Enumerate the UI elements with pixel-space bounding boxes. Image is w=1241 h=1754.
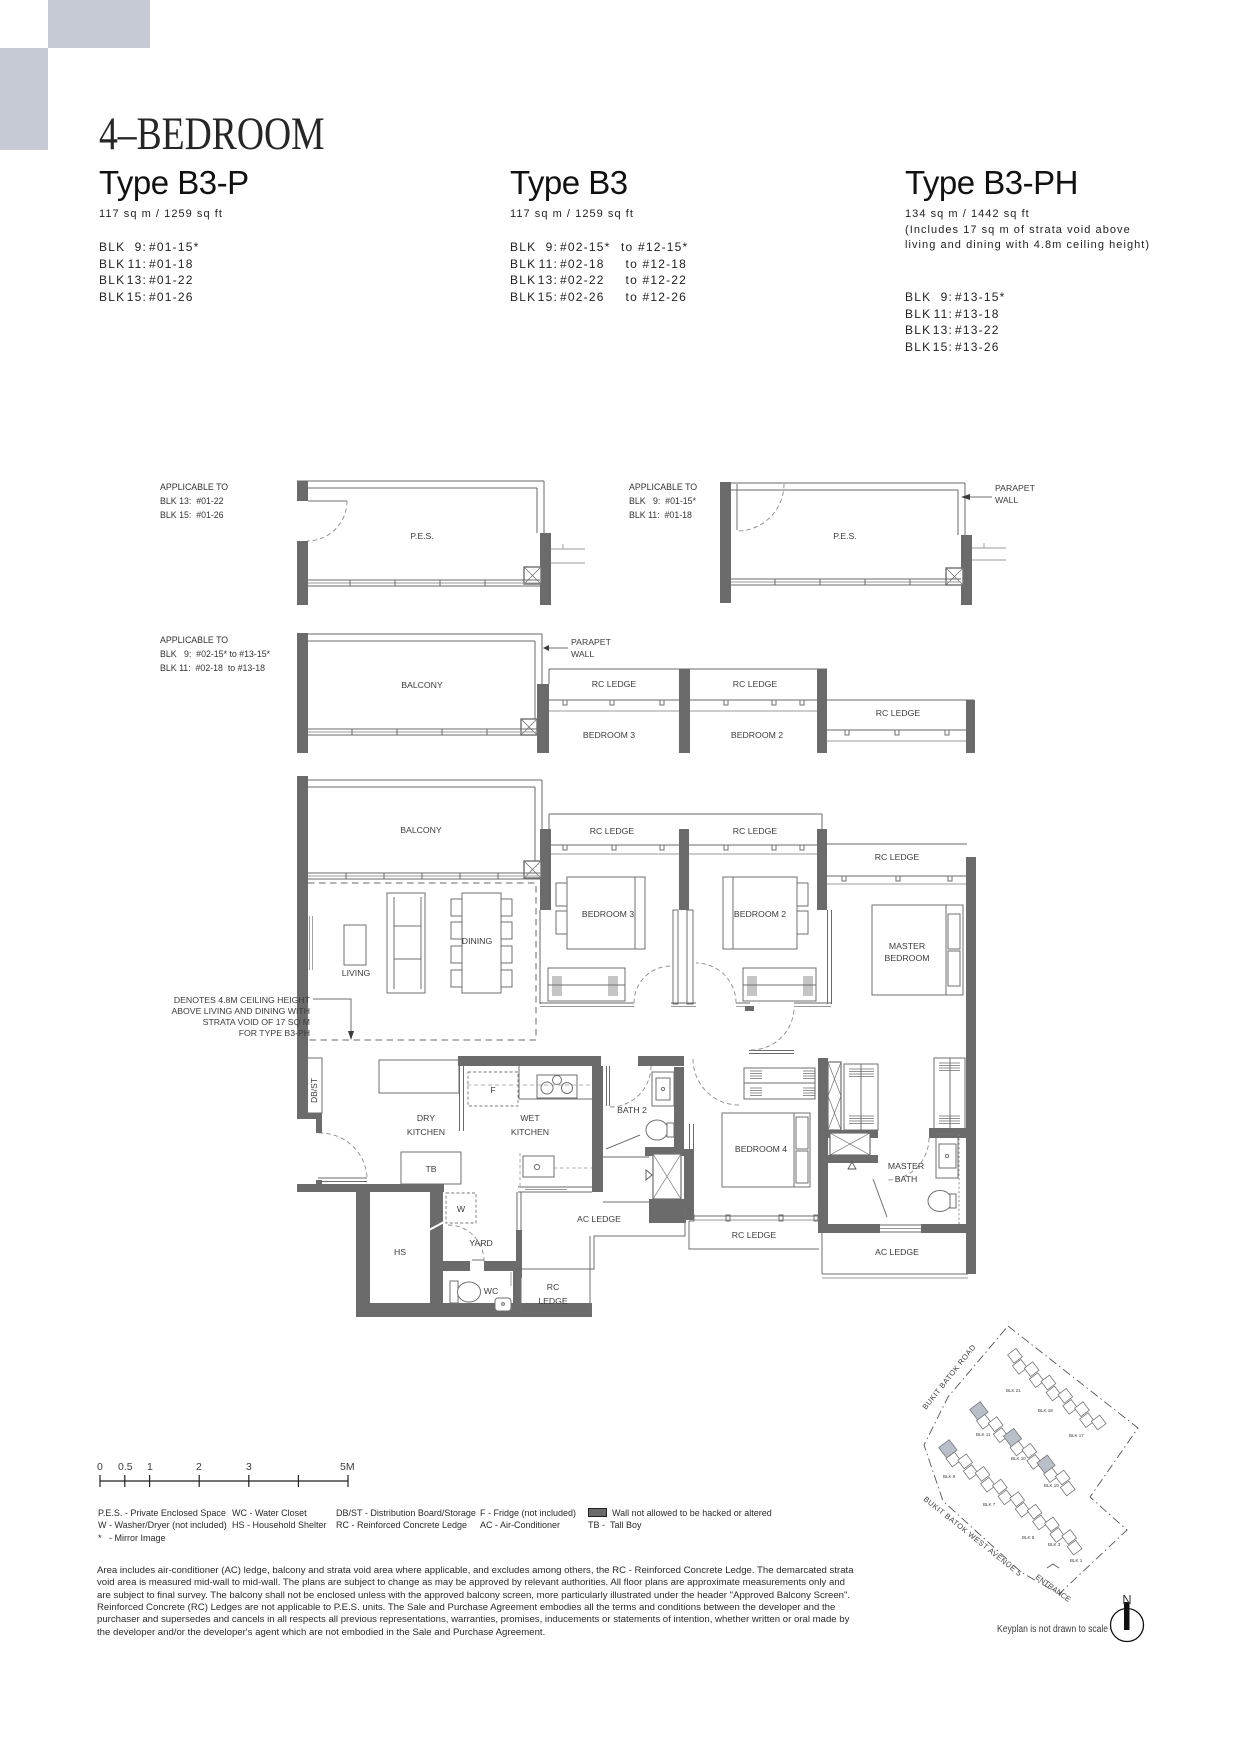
svg-text:TB: TB	[425, 1164, 436, 1174]
svg-text:BEDROOM 3: BEDROOM 3	[583, 730, 635, 740]
svg-text:F: F	[490, 1085, 495, 1095]
svg-text:RC: RC	[547, 1282, 560, 1292]
svg-text:DRY: DRY	[417, 1113, 435, 1123]
svg-text:BLK 15: #01-26: BLK 15: #01-26	[160, 510, 224, 520]
svg-text:BEDROOM 2: BEDROOM 2	[734, 909, 786, 919]
svg-text:BUKIT BATOK ROAD: BUKIT BATOK ROAD	[921, 1343, 978, 1412]
svg-text:AC LEDGE: AC LEDGE	[875, 1247, 919, 1257]
svg-text:BUKIT BATOK WEST AVENUE 5: BUKIT BATOK WEST AVENUE 5	[922, 1495, 1024, 1579]
svg-text:LIVING: LIVING	[342, 968, 371, 978]
svg-text:P.E.S.: P.E.S.	[833, 531, 857, 541]
svg-text:WET: WET	[520, 1113, 540, 1123]
svg-text:APPLICABLE TO: APPLICABLE TO	[629, 482, 697, 492]
svg-text:PARAPET: PARAPET	[995, 483, 1036, 493]
svg-text:BLK 17: BLK 17	[1069, 1433, 1084, 1438]
svg-text:BLK 11: #02-18 to #13-18: BLK 11: #02-18 to #13-18	[160, 663, 265, 673]
svg-text:2: 2	[196, 1461, 202, 1473]
svg-text:RC LEDGE: RC LEDGE	[733, 826, 778, 836]
svg-text:BLK 9: #02-15* to #13-15*: BLK 9: #02-15* to #13-15*	[160, 649, 271, 659]
svg-text:HS: HS	[394, 1247, 406, 1257]
svg-text:APPLICABLE TO: APPLICABLE TO	[160, 482, 228, 492]
svg-text:BEDROOM 2: BEDROOM 2	[731, 730, 783, 740]
svg-text:BLK 9: BLK 9	[943, 1474, 956, 1479]
svg-text:BEDROOM 3: BEDROOM 3	[582, 909, 634, 919]
svg-text:DB/ST: DB/ST	[309, 1078, 319, 1103]
svg-text:MASTER: MASTER	[888, 1161, 924, 1171]
svg-text:BLK 3: BLK 3	[1048, 1542, 1061, 1547]
svg-text:PARAPET: PARAPET	[571, 637, 612, 647]
svg-text:BATH: BATH	[895, 1174, 918, 1184]
svg-text:ABOVE LIVING AND DINING WITH: ABOVE LIVING AND DINING WITH	[171, 1006, 310, 1016]
svg-text:BALCONY: BALCONY	[400, 825, 442, 835]
svg-text:RC LEDGE: RC LEDGE	[875, 852, 920, 862]
svg-text:MASTER: MASTER	[889, 941, 925, 951]
svg-text:BLK 18: BLK 18	[1038, 1408, 1053, 1413]
svg-text:LEDGE: LEDGE	[538, 1296, 568, 1306]
svg-text:BLK 21: BLK 21	[1006, 1388, 1021, 1393]
svg-text:WALL: WALL	[571, 649, 595, 659]
svg-text:STRATA VOID OF 17 SQ M: STRATA VOID OF 17 SQ M	[203, 1017, 310, 1027]
svg-text:BEDROOM 4: BEDROOM 4	[735, 1144, 787, 1154]
svg-text:RC LEDGE: RC LEDGE	[732, 1230, 777, 1240]
svg-text:BEDROOM: BEDROOM	[885, 953, 930, 963]
svg-text:BATH 2: BATH 2	[617, 1105, 647, 1115]
svg-text:RC LEDGE: RC LEDGE	[592, 679, 637, 689]
svg-text:BLK 13: #01-22: BLK 13: #01-22	[160, 496, 224, 506]
svg-text:BLK 11: BLK 11	[976, 1432, 991, 1437]
svg-text:APPLICABLE TO: APPLICABLE TO	[160, 635, 228, 645]
svg-text:0.5: 0.5	[118, 1461, 133, 1473]
svg-text:W: W	[457, 1204, 466, 1214]
svg-text:KITCHEN: KITCHEN	[511, 1127, 549, 1137]
svg-text:BLK 9: #01-15*: BLK 9: #01-15*	[629, 496, 697, 506]
svg-text:BLK 7: BLK 7	[983, 1502, 996, 1507]
svg-text:BLK 1: BLK 1	[1070, 1558, 1083, 1563]
svg-text:Keyplan is not drawn to scale: Keyplan is not drawn to scale	[997, 1624, 1108, 1635]
svg-text:AC LEDGE: AC LEDGE	[577, 1214, 621, 1224]
svg-text:BLK 10: BLK 10	[1011, 1456, 1026, 1461]
svg-text:DINING: DINING	[462, 936, 493, 946]
svg-text:P.E.S.: P.E.S.	[410, 531, 434, 541]
svg-text:BLK 11: #01-18: BLK 11: #01-18	[629, 510, 692, 520]
svg-text:WC: WC	[484, 1286, 498, 1296]
svg-text:RC LEDGE: RC LEDGE	[590, 826, 635, 836]
svg-text:BALCONY: BALCONY	[401, 680, 443, 690]
svg-text:ENTRANCE: ENTRANCE	[1034, 1572, 1073, 1604]
svg-text:3: 3	[246, 1461, 252, 1473]
svg-text:1: 1	[147, 1461, 153, 1473]
svg-text:RC LEDGE: RC LEDGE	[733, 679, 778, 689]
svg-text:0: 0	[97, 1461, 103, 1473]
svg-text:BLK 5: BLK 5	[1022, 1535, 1035, 1540]
svg-text:5M: 5M	[340, 1461, 355, 1473]
svg-text:KITCHEN: KITCHEN	[407, 1127, 445, 1137]
svg-text:BLK 19: BLK 19	[1044, 1483, 1059, 1488]
svg-text:FOR TYPE B3-PH: FOR TYPE B3-PH	[239, 1028, 310, 1038]
svg-text:N: N	[1122, 1592, 1131, 1607]
svg-text:WALL: WALL	[995, 495, 1019, 505]
svg-text:RC LEDGE: RC LEDGE	[876, 708, 921, 718]
svg-text:DENOTES 4.8M CEILING HEIGHT: DENOTES 4.8M CEILING HEIGHT	[174, 995, 311, 1005]
